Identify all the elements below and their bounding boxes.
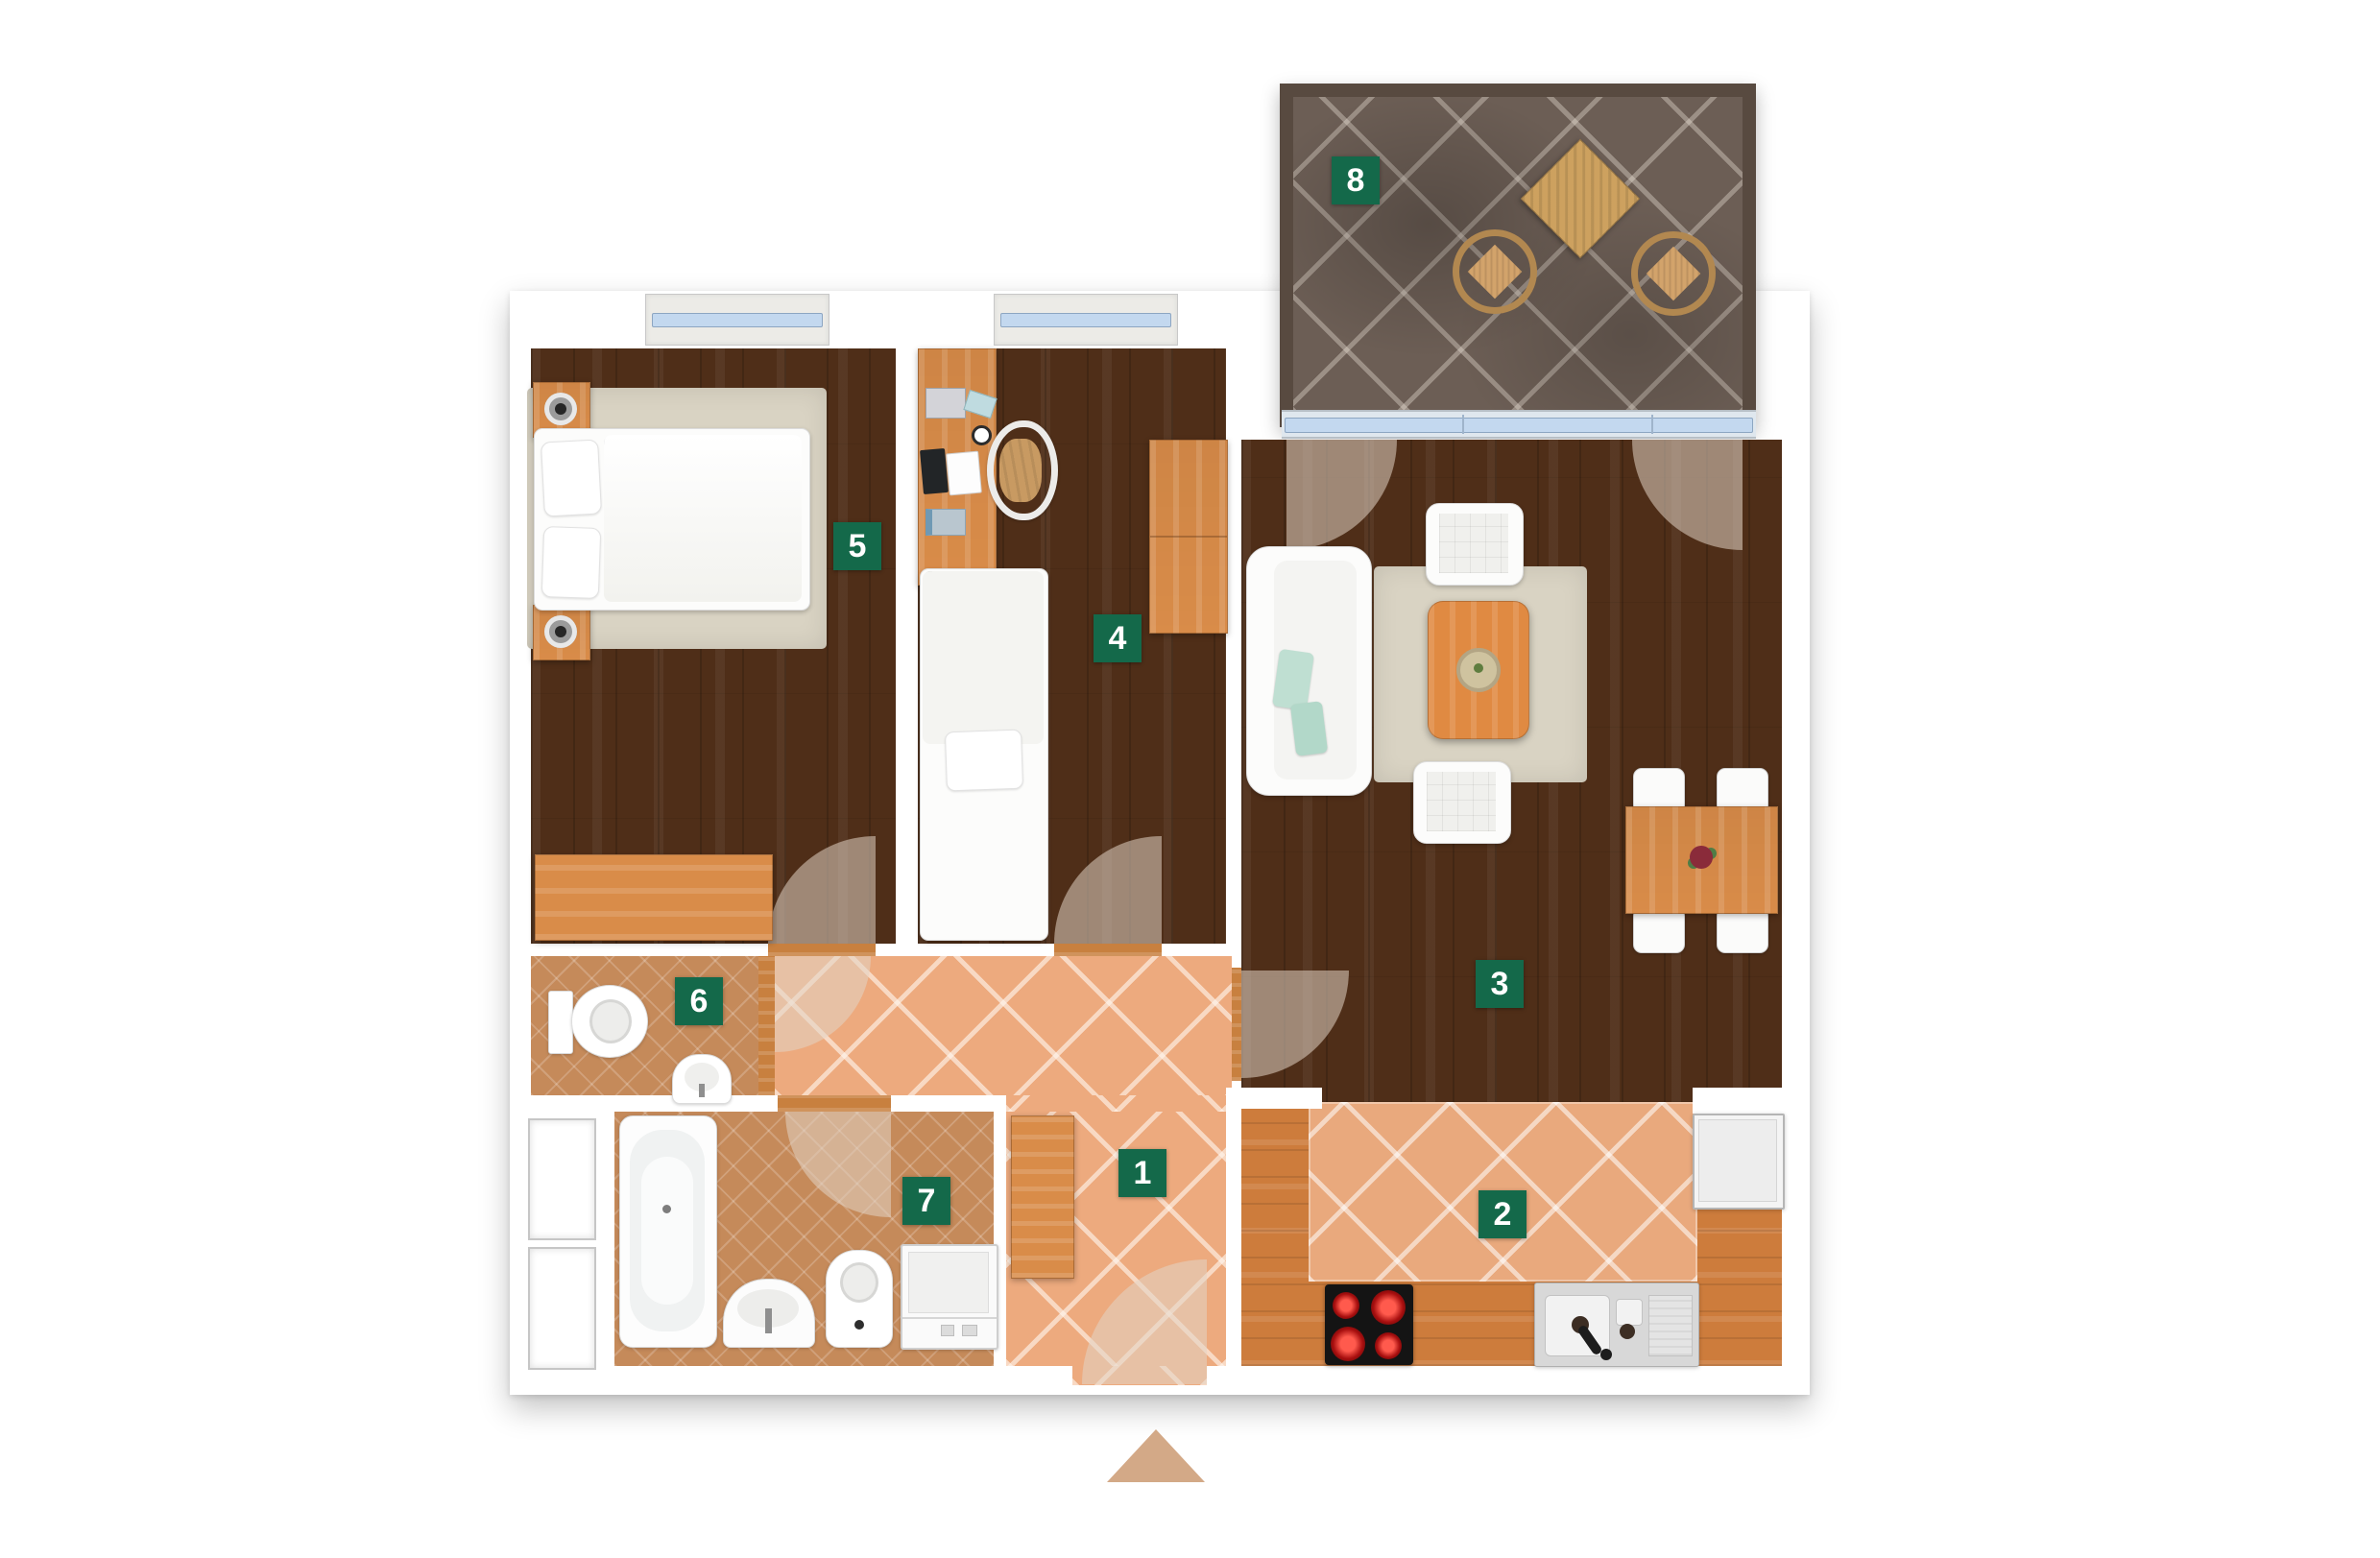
armchair: [1413, 761, 1511, 844]
drain-icon: [662, 1205, 671, 1213]
bidet: [826, 1250, 893, 1348]
single-bed: [920, 568, 1048, 941]
washer-panel-line: [902, 1317, 997, 1319]
washer-lid: [908, 1252, 989, 1313]
balcony-chair-seat: [1647, 247, 1701, 301]
room-label-6-wc: 6: [675, 977, 723, 1025]
double-bed: [534, 428, 810, 611]
balcony-chair: [1631, 231, 1716, 316]
bathroom-door: [778, 1095, 891, 1112]
hallway-cabinet: [1011, 1115, 1074, 1279]
toilet-bowl: [589, 999, 632, 1043]
entrance-arrow-icon: [1107, 1429, 1205, 1482]
living-room-door: [1232, 968, 1241, 1081]
dresser: [535, 854, 773, 941]
laptop-screen: [920, 448, 949, 494]
office-chair: [987, 420, 1058, 520]
drain-icon: [1620, 1324, 1635, 1339]
wc-sink: [672, 1054, 732, 1104]
book: [926, 509, 966, 536]
washing-machine: [901, 1244, 998, 1350]
sink-bowl-small: [1616, 1299, 1643, 1326]
armchair: [1426, 503, 1524, 586]
wall-segment: [1226, 1088, 1322, 1109]
burner-icon: [1333, 1292, 1359, 1319]
glass-divider: [1462, 415, 1464, 434]
office-door: [1054, 944, 1162, 956]
room-label-7-bathroom: 7: [902, 1177, 950, 1225]
toilet: [571, 985, 648, 1058]
wall-niche: [528, 1118, 596, 1240]
dining-chair: [1633, 907, 1685, 953]
room-label-1-hallway: 1: [1118, 1149, 1166, 1197]
balcony-chair: [1453, 229, 1537, 314]
drainboard: [1648, 1295, 1693, 1356]
room-label-2-kitchen: 2: [1478, 1190, 1527, 1238]
faucet-base: [1600, 1349, 1612, 1360]
balcony-glass-door: [1282, 410, 1756, 439]
fridge-top: [1698, 1119, 1777, 1202]
dining-chair: [1717, 907, 1768, 953]
glass-pane: [1285, 418, 1753, 433]
wardrobe-divider: [1150, 536, 1227, 538]
armchair-cushion: [1439, 514, 1508, 573]
coffee-table: [1428, 601, 1529, 739]
washer-controls: [962, 1325, 977, 1336]
faucet-icon: [699, 1084, 705, 1097]
wall-niche: [528, 1247, 596, 1370]
burner-icon: [1331, 1327, 1365, 1361]
toilet-tank: [548, 991, 573, 1054]
sofa-pillow: [1290, 701, 1328, 756]
room-label-3-living: 3: [1476, 960, 1524, 1008]
wall-segment: [1693, 1088, 1782, 1114]
room-label-8-balcony: 8: [1332, 156, 1380, 204]
drain-icon: [854, 1320, 864, 1330]
bedroom-door: [768, 944, 876, 956]
room-label-4-office: 4: [1094, 614, 1142, 662]
hallway-floor: [1006, 1095, 1226, 1112]
bowl: [1456, 648, 1501, 692]
bathtub: [619, 1115, 717, 1348]
floor-plan-canvas: 1 2 3 4 5 6 7 8: [0, 0, 2380, 1558]
window-bedroom: [645, 294, 829, 346]
blanket: [923, 571, 1044, 744]
lamp-center: [555, 626, 566, 637]
wardrobe: [1149, 440, 1228, 634]
armchair-cushion: [1427, 772, 1496, 831]
coffee-cup-icon: [972, 425, 992, 445]
window-office: [994, 294, 1178, 346]
pillow: [541, 526, 602, 599]
burner-icon: [1375, 1332, 1402, 1359]
glass-pane: [1000, 313, 1171, 327]
faucet-icon: [765, 1308, 772, 1333]
burner-icon: [1371, 1290, 1406, 1325]
paper-tray: [926, 388, 966, 419]
bowl-fruit: [1474, 663, 1483, 673]
office-chair-seat: [999, 439, 1042, 502]
pillow: [945, 730, 1023, 792]
glass-pane: [652, 313, 823, 327]
kitchen-sink: [1534, 1282, 1699, 1367]
dining-table: [1625, 806, 1778, 914]
washer-controls: [941, 1325, 954, 1336]
duvet: [604, 435, 802, 602]
pillow: [541, 439, 602, 516]
flower-centerpiece: [1690, 846, 1713, 869]
laptop-keyboard: [946, 451, 982, 496]
nightstand: [533, 605, 590, 660]
fridge: [1693, 1114, 1785, 1210]
balcony-chair-seat: [1468, 245, 1523, 300]
bidet-bowl: [840, 1262, 878, 1303]
bathtub-basin: [641, 1157, 693, 1305]
room-label-5-bedroom: 5: [833, 522, 881, 570]
glass-divider: [1651, 415, 1653, 434]
wc-door: [758, 956, 775, 1095]
sofa: [1246, 546, 1372, 796]
stove: [1325, 1284, 1413, 1365]
lamp-center: [555, 403, 566, 415]
